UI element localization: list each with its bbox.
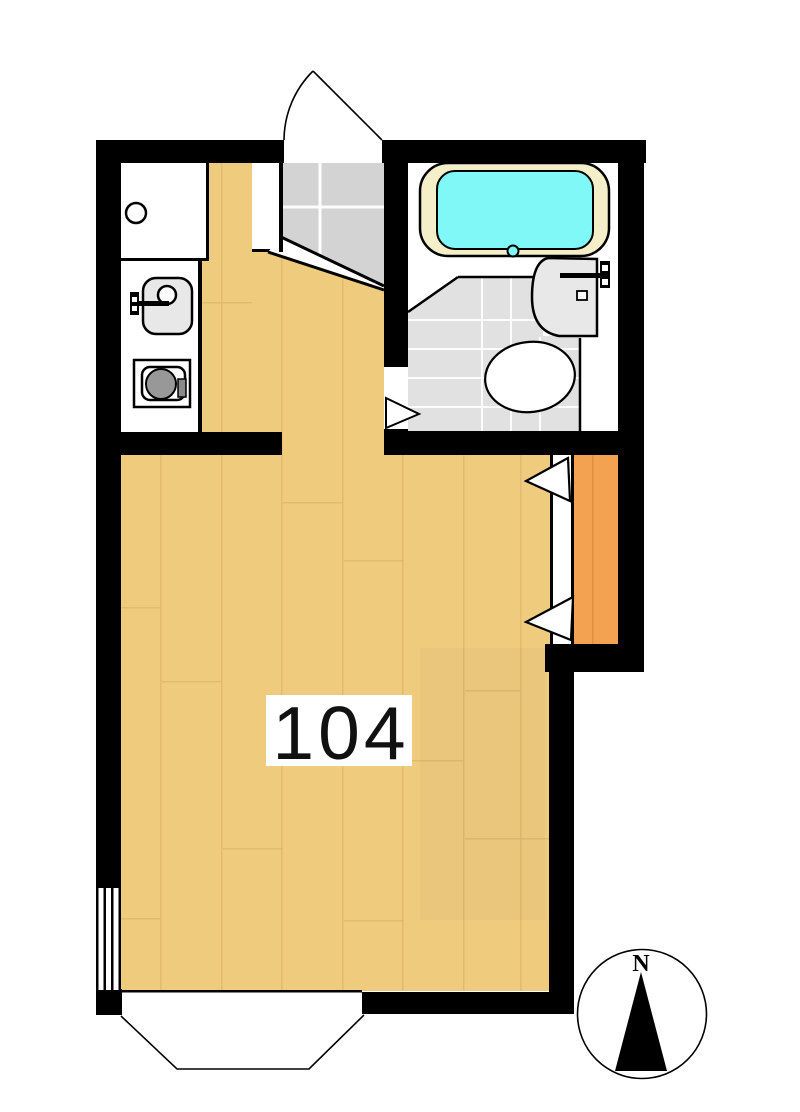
svg-text:104: 104: [272, 691, 409, 775]
svg-text:N: N: [632, 951, 650, 977]
